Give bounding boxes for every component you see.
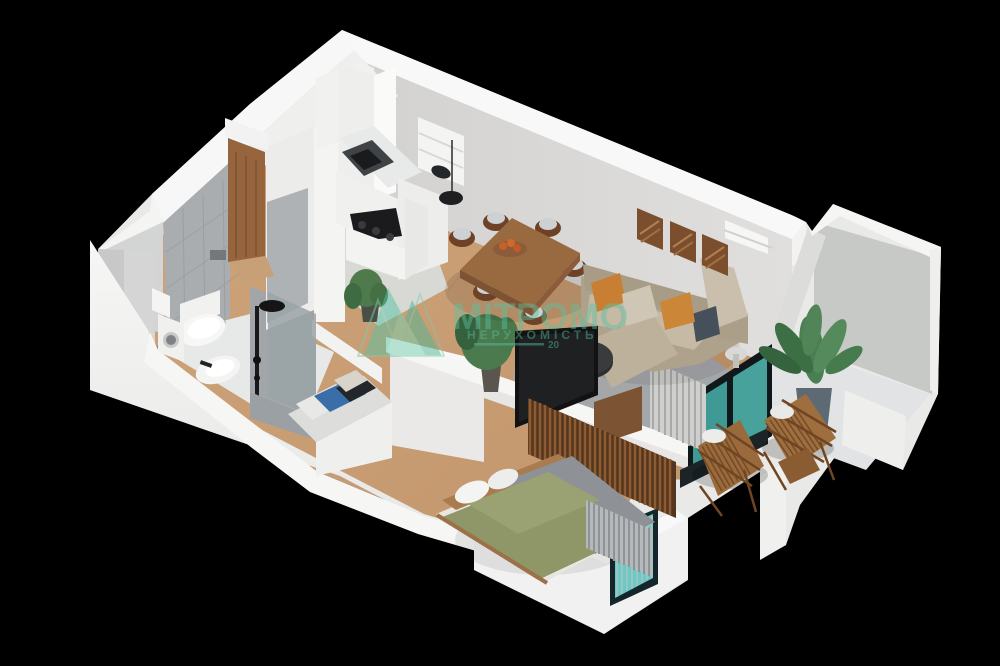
svg-text:НЕРУХОМІСТЬ: НЕРУХОМІСТЬ (467, 328, 598, 342)
svg-text:20: 20 (548, 340, 560, 351)
